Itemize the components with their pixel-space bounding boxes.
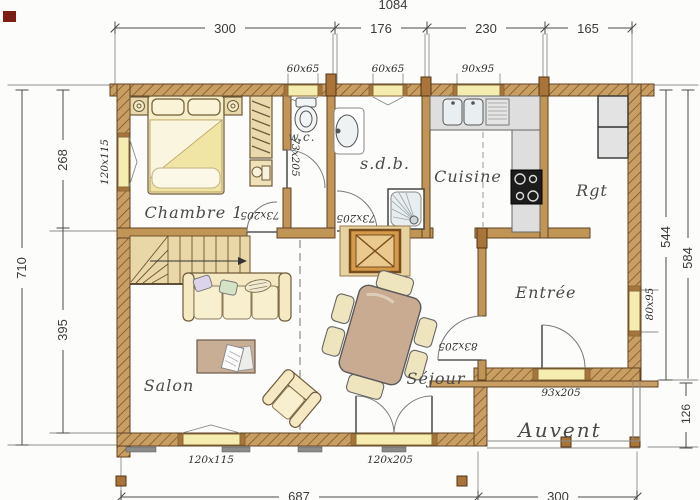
dim-overall-top: 1084 — [379, 0, 408, 12]
washbasin — [334, 108, 364, 154]
room-label-cuisine: Cuisine — [434, 167, 502, 186]
label-window-salon: 120x115 — [188, 454, 234, 466]
wall-sejour-entree-lower — [478, 360, 486, 380]
dim-bottom-687: 687 — [288, 489, 310, 500]
label-door-chambre: 73x205 — [240, 209, 280, 221]
label-window-sdb: 60x65 — [372, 63, 405, 75]
dim-top-230: 230 — [475, 21, 497, 36]
label-door-front: 93x205 — [541, 387, 581, 399]
post-top-3 — [539, 77, 549, 96]
room-label-sdb: s.d.b. — [360, 154, 410, 173]
wall-porch-west — [474, 378, 487, 446]
door-sdb-arc — [337, 191, 377, 231]
window-sdb — [373, 85, 403, 96]
dim-top-165: 165 — [577, 21, 599, 36]
post-front-2 — [457, 476, 467, 486]
window-cuisine — [457, 85, 500, 96]
room-label-chambre: Chambre 1 — [145, 203, 244, 222]
window-wc — [288, 85, 318, 96]
wardrobe — [250, 96, 272, 186]
floor-plan: 1084 300 176 230 165 268 395 710 544 584… — [0, 0, 700, 500]
room-label-entree: Entrée — [515, 283, 577, 302]
label-door-terrace: 120x205 — [367, 454, 413, 466]
door-sejour-arc — [438, 316, 482, 360]
label-window-wc: 60x65 — [287, 63, 320, 75]
window-chambre — [118, 137, 129, 187]
corner-mark — [3, 11, 16, 22]
post-top-1 — [326, 74, 336, 96]
post-auvent-2 — [630, 437, 640, 447]
dim-top-300: 300 — [214, 21, 236, 36]
throw-pillow — [219, 279, 238, 295]
coffee-table — [197, 340, 255, 373]
floor-plan-drawing: 1084 300 176 230 165 268 395 710 544 584… — [0, 0, 700, 500]
cooktop — [511, 170, 542, 204]
room-label-sejour: Séjour — [407, 369, 466, 388]
post-front-1 — [116, 476, 126, 486]
door-terrace-arc-left — [356, 396, 394, 434]
dim-top-176: 176 — [370, 21, 392, 36]
dim-bottom-300: 300 — [547, 489, 569, 500]
sill-terrace-door — [356, 434, 432, 445]
toilet — [295, 98, 317, 132]
wood-stove — [340, 226, 410, 276]
wall-east — [628, 84, 641, 382]
foundation-bars — [126, 447, 406, 452]
window-salon — [182, 434, 240, 445]
label-window-chambre: 120x115 — [99, 139, 111, 185]
dim-right-544: 544 — [658, 226, 673, 248]
bed — [148, 96, 224, 194]
post-entree-corner — [477, 228, 487, 248]
dim-left-710: 710 — [14, 257, 29, 279]
sill-front-door — [538, 369, 585, 380]
dim-left-268: 268 — [55, 149, 70, 171]
wall-hall-south — [277, 228, 335, 238]
wall-wc-west-lower — [283, 188, 291, 228]
shower — [388, 189, 424, 229]
room-label-rgt: Rgt — [575, 181, 608, 200]
label-door-sejour: 83x205 — [438, 340, 478, 352]
door-terrace-arc-right — [394, 396, 432, 434]
sofa — [183, 273, 291, 321]
dim-left-395: 395 — [55, 319, 70, 341]
label-door-wc: 73x205 — [289, 137, 301, 177]
armchair — [261, 368, 323, 430]
room-label-salon: Salon — [144, 376, 195, 395]
door-front-arc — [542, 325, 585, 368]
window-entree — [629, 290, 640, 332]
label-door-sdb: 73x205 — [336, 212, 376, 224]
label-window-entree: 80x95 — [644, 287, 656, 320]
wall-sejour-entree-upper — [478, 238, 486, 316]
storage-cabinet — [598, 96, 628, 158]
kitchen-counter — [430, 96, 540, 232]
label-window-cuisine: 90x95 — [462, 63, 495, 75]
dim-right-126: 126 — [679, 404, 693, 424]
wall-cuisine-rgt — [540, 96, 548, 238]
room-label-auvent: Auvent — [516, 418, 601, 442]
post-top-2 — [421, 77, 431, 96]
dim-right-584: 584 — [680, 247, 695, 269]
